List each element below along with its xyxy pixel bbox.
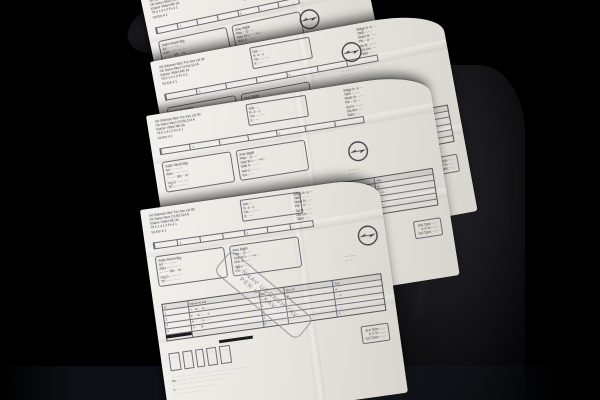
illegible-amount: ··,·· [206,347,218,366]
illegible-amount: ····,·· [218,345,232,364]
opel-blitz-logo-icon [296,6,322,32]
totals-box: Ara Tplm ···,··K·V %·· ··,··Gnl Tplm ···… [360,323,390,345]
dealer-address-block: Gd Sdaman Mch Tnc Svn Lld SllOk Sarun Mu… [155,107,241,141]
reference-lines: ··· ····· ······ ··· [348,167,362,177]
illegible-amount: ··· [195,349,205,368]
illegible-amount: ···,·· [168,352,181,371]
opel-blitz-logo-icon [355,223,380,248]
illegible-text-line: ···· ··· [348,171,361,177]
illegible-text-line: ···· ··· [342,72,355,78]
reference-lines: ··· ····· ······ ··· [342,68,356,78]
invoice-page: Gd Sdaman Mch Tnc Svn Lld SllOk Sarun Mu… [140,177,408,400]
illegible-amount: ··,·· [182,350,194,369]
dealer-address-block: Gd Sdaman Mch Tnc Svn Lld SllOk Sarun Mu… [149,202,235,234]
opel-blitz-logo-icon [339,39,365,65]
photo-of-invoices-on-car-seat: Gd Sdaman Mch Tnc Svn Lld SllOk Sarun Mu… [0,0,600,400]
illegible-text-line: ···· ··· [345,257,358,263]
paper-sheet-4: Gd Sdaman Mch Tnc Svn Lld SllOk Sarun Mu… [140,177,408,400]
reference-lines: ··· ····· ······ ··· [344,253,357,263]
totals-box: Ara Tplm ···,··K·V %·· ··,··Gnl Tplm ···… [413,217,443,239]
opel-blitz-logo-icon [346,139,371,164]
